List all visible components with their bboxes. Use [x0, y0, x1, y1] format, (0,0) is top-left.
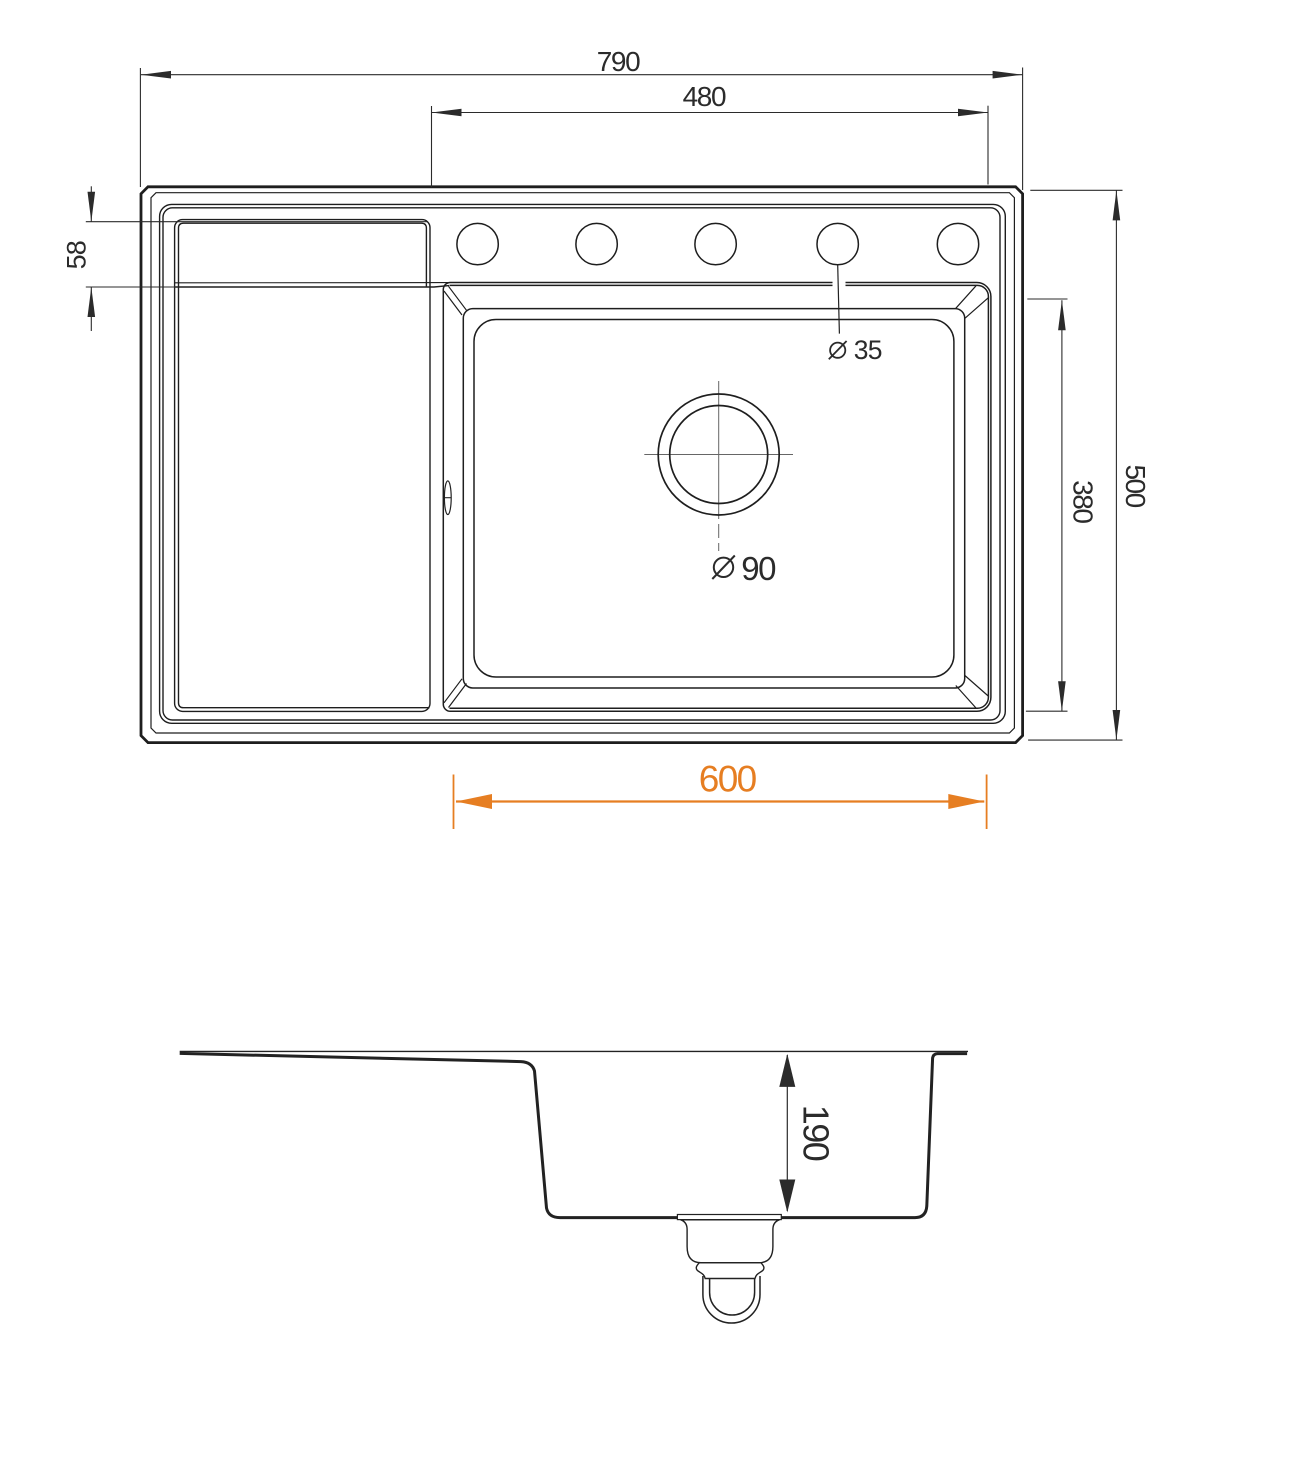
svg-text:500: 500 [1120, 464, 1151, 507]
svg-text:600: 600 [699, 759, 757, 800]
svg-text:90: 90 [741, 550, 776, 587]
svg-text:480: 480 [683, 81, 726, 112]
svg-text:380: 380 [1068, 480, 1099, 523]
svg-text:58: 58 [62, 241, 92, 269]
svg-text:790: 790 [597, 46, 640, 77]
svg-text:190: 190 [795, 1105, 836, 1161]
svg-text:35: 35 [854, 335, 882, 365]
